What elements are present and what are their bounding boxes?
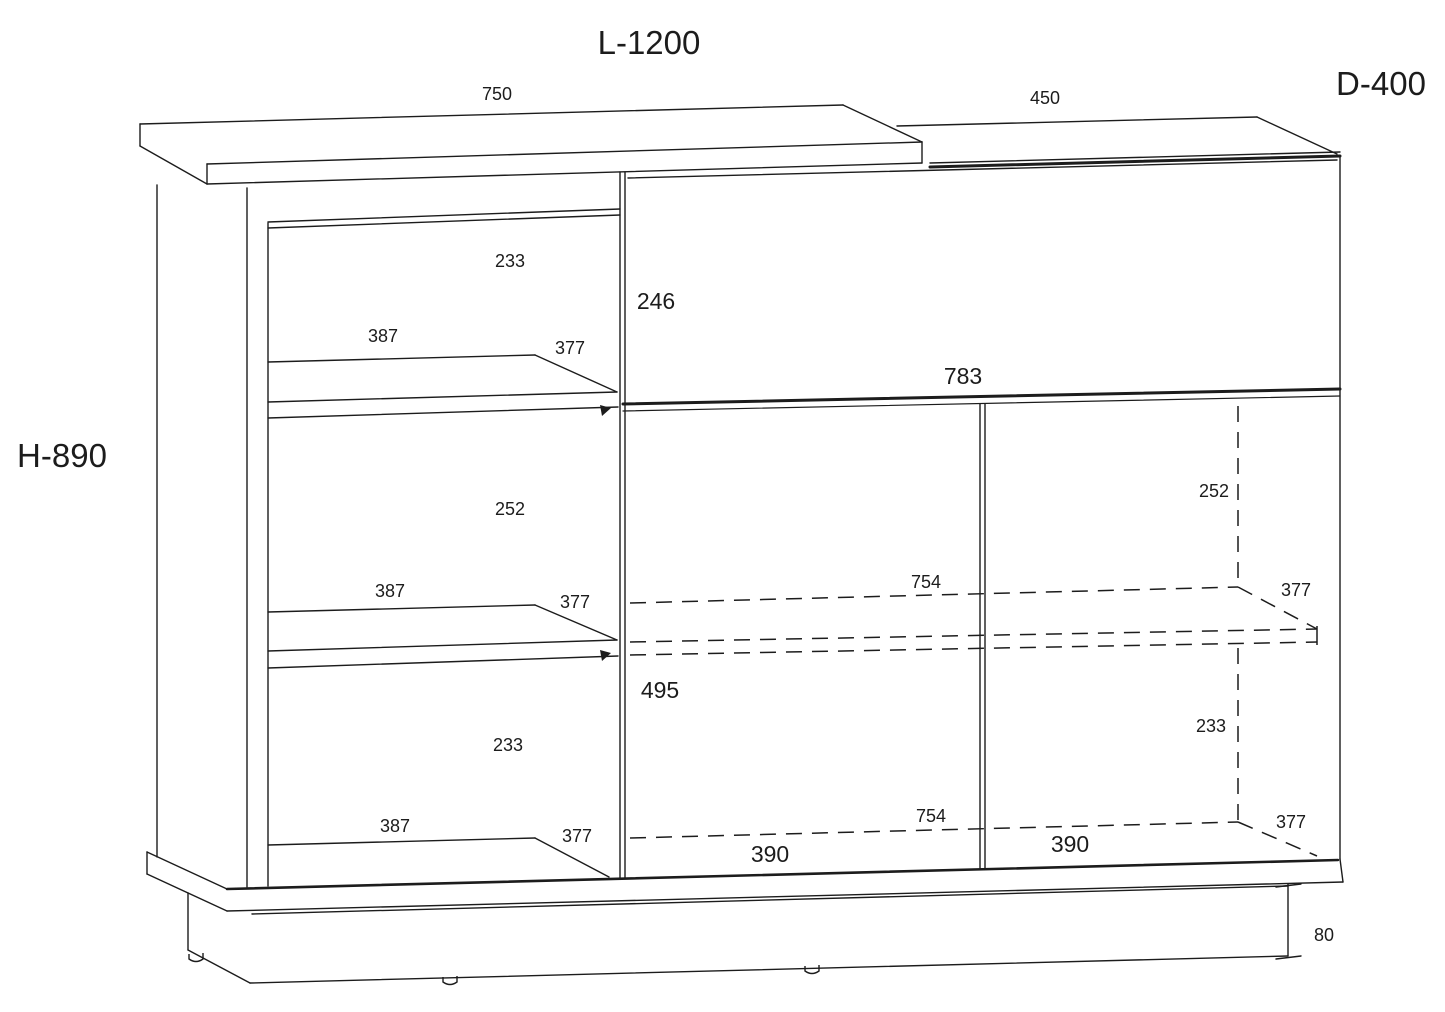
c1-height: 233: [495, 251, 525, 271]
c2-height: 252: [495, 499, 525, 519]
cabinet-dimension-drawing: L-1200 D-400 H-890 750 450 233 387 377 2…: [0, 0, 1445, 1012]
shelf-upper: [268, 355, 618, 418]
right-upper-shelf-depth: 377: [1281, 580, 1311, 600]
technical-drawing-page: L-1200 D-400 H-890 750 450 233 387 377 2…: [0, 0, 1445, 1012]
right-lower-height: 233: [1196, 716, 1226, 736]
shelf-lower: [268, 605, 618, 668]
right-inner-height: 495: [641, 677, 679, 703]
right-door-width: 390: [1051, 831, 1089, 857]
top-slab: [140, 105, 922, 184]
bottom-slab: [147, 852, 1343, 911]
right-upper-shelf-width: 754: [911, 572, 941, 592]
hidden-shelf-front-top: [630, 629, 1317, 642]
flap-width: 783: [944, 363, 982, 389]
c1-depth: 377: [555, 338, 585, 358]
plinth-height-label: 80: [1314, 925, 1334, 945]
feet: [189, 953, 819, 985]
overall-height-label: H-890: [17, 437, 107, 474]
interior-ceiling: [268, 209, 620, 228]
top-left-width: 750: [482, 84, 512, 104]
c3-height: 233: [493, 735, 523, 755]
plinth: [188, 884, 1288, 983]
foot-right: [805, 965, 819, 974]
shelf-pins: [600, 405, 611, 661]
door-divider: [980, 404, 985, 869]
shelf-pin-lower: [600, 650, 611, 661]
dimension-labels: L-1200 D-400 H-890 750 450 233 387 377 2…: [17, 24, 1426, 945]
hidden-shelf-front-bottom: [630, 642, 1317, 655]
overall-length-label: L-1200: [598, 24, 701, 61]
left-side-panel: [157, 185, 268, 887]
right-upper-height: 252: [1199, 481, 1229, 501]
overall-depth-label: D-400: [1336, 65, 1426, 102]
interior-bottom: [268, 838, 609, 877]
center-partition: [620, 172, 625, 878]
flap-height: 246: [637, 288, 675, 314]
c2-width: 387: [375, 581, 405, 601]
right-lower-shelf-depth: 377: [1276, 812, 1306, 832]
right-lower-shelf-width: 754: [916, 806, 946, 826]
cabinet-outline: [140, 105, 1343, 983]
hidden-lines: [630, 406, 1317, 856]
c1-width: 387: [368, 326, 398, 346]
top-right-width: 450: [1030, 88, 1060, 108]
c3-width: 387: [380, 816, 410, 836]
right-top-panel: [897, 117, 1340, 167]
left-door-width: 390: [751, 841, 789, 867]
c2-depth: 377: [560, 592, 590, 612]
c3-depth: 377: [562, 826, 592, 846]
